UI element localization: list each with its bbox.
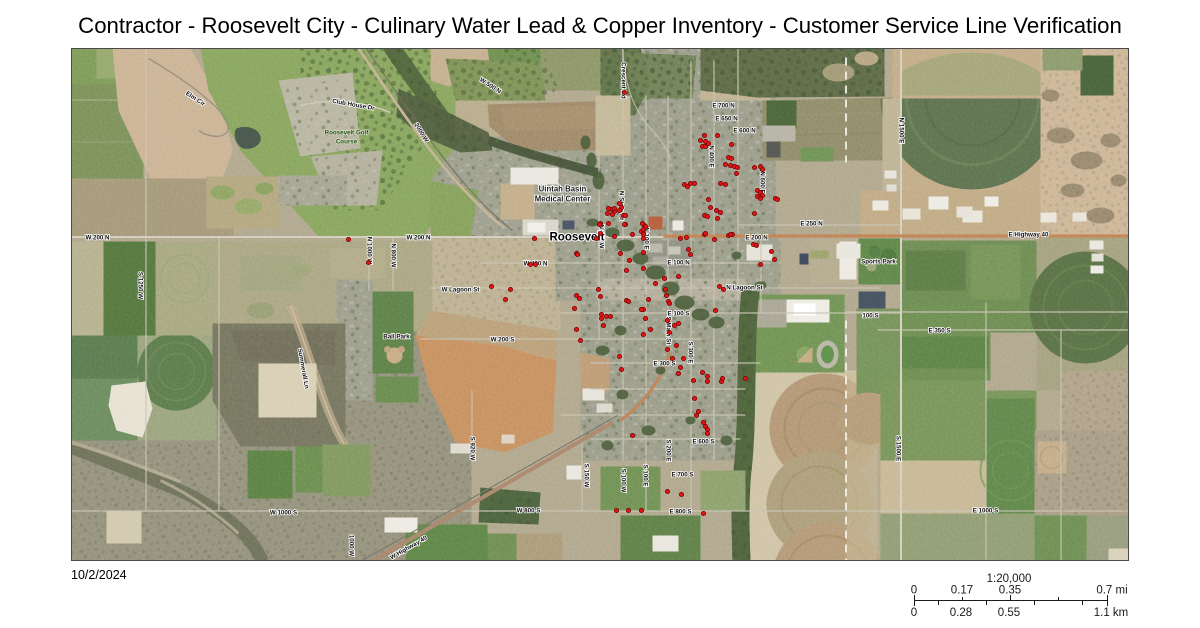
svg-text:Uintah Basin: Uintah Basin: [539, 185, 587, 194]
svg-text:1:20,000: 1:20,000: [987, 573, 1032, 585]
svg-text:E 1000 S: E 1000 S: [973, 508, 998, 515]
svg-text:S 150 W: S 150 W: [583, 464, 590, 488]
svg-text:Medical Center: Medical Center: [535, 195, 590, 204]
svg-text:W 200 N: W 200 N: [85, 235, 110, 242]
svg-text:W 200 S: W 200 S: [491, 337, 515, 344]
svg-text:0.7 mi: 0.7 mi: [1096, 585, 1127, 597]
svg-text:E 250 N: E 250 N: [800, 221, 823, 228]
svg-text:E 800 S: E 800 S: [669, 509, 691, 516]
svg-text:E 300 S: E 300 S: [653, 361, 675, 368]
svg-text:E 200 N: E 200 N: [745, 235, 768, 242]
svg-text:S 200 E: S 200 E: [665, 439, 672, 461]
svg-text:Course: Course: [336, 139, 358, 146]
svg-text:S 100 W: S 100 W: [620, 469, 627, 493]
svg-text:0: 0: [911, 607, 917, 619]
svg-text:S 1500 E: S 1500 E: [895, 436, 902, 461]
svg-text:W Lagoon St: W Lagoon St: [442, 287, 480, 294]
svg-text:W 200 N: W 200 N: [406, 235, 431, 242]
svg-text:S 300 E: S 300 E: [687, 341, 694, 363]
svg-text:E 350 S: E 350 S: [928, 328, 950, 335]
svg-text:1000 W: 1000 W: [348, 535, 355, 556]
svg-text:S 1250 W: S 1250 W: [137, 272, 144, 299]
svg-text:N 800 W: N 800 W: [390, 243, 397, 267]
svg-text:0.55: 0.55: [998, 607, 1020, 619]
svg-text:E 700 N: E 700 N: [712, 103, 735, 110]
svg-text:S 100 E: S 100 E: [642, 464, 649, 486]
svg-text:0.28: 0.28: [950, 607, 972, 619]
svg-text:0.17: 0.17: [951, 585, 973, 597]
svg-text:0.35: 0.35: [999, 585, 1021, 597]
svg-text:Sports Park: Sports Park: [861, 259, 896, 266]
svg-text:0: 0: [911, 585, 917, 597]
svg-text:Ball Park: Ball Park: [383, 334, 410, 341]
svg-text:E 600 N: E 600 N: [733, 128, 756, 135]
svg-text:E 600 S: E 600 S: [692, 439, 714, 446]
svg-text:100 S: 100 S: [862, 313, 878, 320]
svg-text:E 100 N: E 100 N: [667, 260, 690, 267]
svg-text:S 920 W: S 920 W: [469, 437, 476, 461]
svg-text:N Lagoon St: N Lagoon St: [726, 285, 762, 292]
svg-text:1.1 km: 1.1 km: [1094, 607, 1129, 619]
svg-text:N 400 E: N 400 E: [708, 145, 715, 167]
svg-text:W 800 S: W 800 S: [517, 508, 541, 515]
svg-text:E 700 S: E 700 S: [671, 472, 693, 479]
svg-text:W 1000 S: W 1000 S: [270, 510, 297, 517]
svg-text:N 1500 E: N 1500 E: [898, 118, 905, 144]
svg-text:E 650 N: E 650 N: [715, 116, 738, 123]
svg-text:Roosevelt Golf: Roosevelt Golf: [325, 130, 370, 137]
svg-text:E Highway 40: E Highway 40: [1009, 232, 1049, 239]
